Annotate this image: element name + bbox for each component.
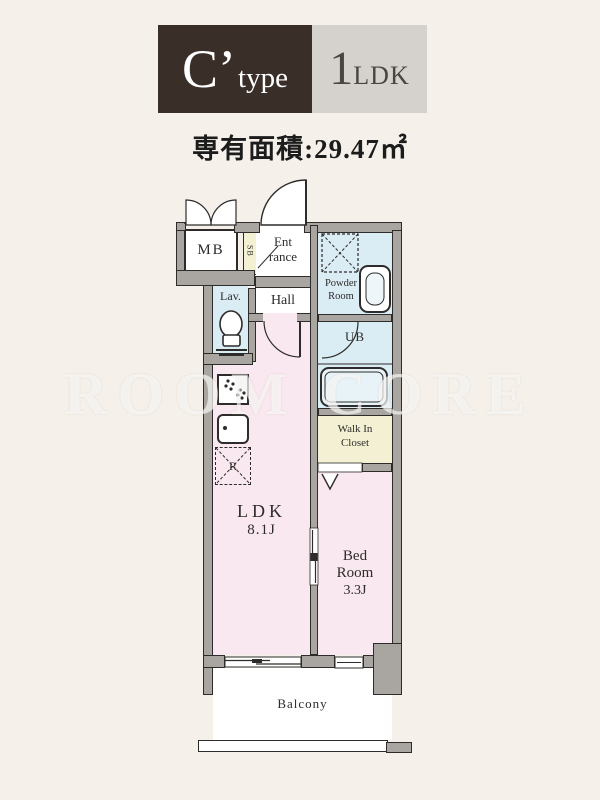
wall-center-lower <box>310 583 318 655</box>
wall <box>304 222 402 233</box>
bedroom-door-handle <box>311 553 318 561</box>
wall <box>301 655 335 668</box>
kitchen-sink <box>217 414 249 444</box>
entrance-door-swing <box>261 180 306 225</box>
layout-badge-sub: LDK <box>353 61 409 91</box>
layout-badge: 1 LDK <box>312 25 427 113</box>
closet-opening <box>318 463 362 472</box>
wall <box>362 463 392 472</box>
powder-label-line2: Room <box>316 291 366 303</box>
mb-door-right <box>211 200 236 225</box>
type-badge-sub: type <box>238 62 288 95</box>
ldk-window-lock <box>252 659 262 663</box>
bedroom-door-opening <box>310 528 318 585</box>
hall-label: Hall <box>256 293 310 309</box>
layout-badge-main: 1 <box>329 25 353 113</box>
floorplan-page: C’ type 1 LDK 専有面積:29.47㎡ SB R <box>0 0 600 800</box>
wic-label-line2: Closet <box>318 437 392 450</box>
wall <box>255 276 312 288</box>
wall-center-upper <box>310 225 318 530</box>
refrigerator-label: R <box>229 459 237 474</box>
wall <box>203 353 253 365</box>
stove <box>217 374 249 405</box>
floor-area-text: 専有面積:29.47㎡ <box>0 127 600 166</box>
wall-right <box>392 230 402 645</box>
unit-bath-label: UB <box>318 330 392 345</box>
refrigerator-space: R <box>215 447 251 485</box>
wall <box>176 270 255 286</box>
lavatory-label: Lav. <box>211 290 250 304</box>
ldk-label: LDK <box>213 501 310 522</box>
shoe-box-label: SB <box>246 245 255 257</box>
wall <box>318 314 392 322</box>
type-badge: C’ type <box>158 25 312 113</box>
wall <box>203 655 225 668</box>
wall-corner-column <box>373 643 402 695</box>
mb-label: MB <box>184 242 238 259</box>
bedroom-size-label: 3.3J <box>318 583 392 599</box>
ldk-size-label: 8.1J <box>213 522 310 539</box>
wall <box>318 408 392 416</box>
wall <box>248 313 264 322</box>
balcony-rail-end <box>386 742 412 753</box>
bedroom-label-line2: Room <box>318 565 392 582</box>
balcony-rail <box>198 740 388 752</box>
bedroom-window <box>335 657 363 668</box>
entrance-label-line2: rance <box>256 250 310 265</box>
wic-label-line1: Walk In <box>318 423 392 436</box>
shoe-box: SB <box>243 227 257 275</box>
balcony-label: Balcony <box>213 697 392 712</box>
powder-label-line1: Powder <box>316 278 366 290</box>
ldk-window <box>225 657 301 667</box>
wall-left-lower <box>203 285 213 695</box>
wall <box>234 222 260 233</box>
type-badge-main: C’ <box>182 25 236 113</box>
mb-door-left <box>186 200 211 225</box>
entrance-label-line1: Ent <box>256 235 310 250</box>
bedroom-label-line1: Bed <box>318 548 392 565</box>
